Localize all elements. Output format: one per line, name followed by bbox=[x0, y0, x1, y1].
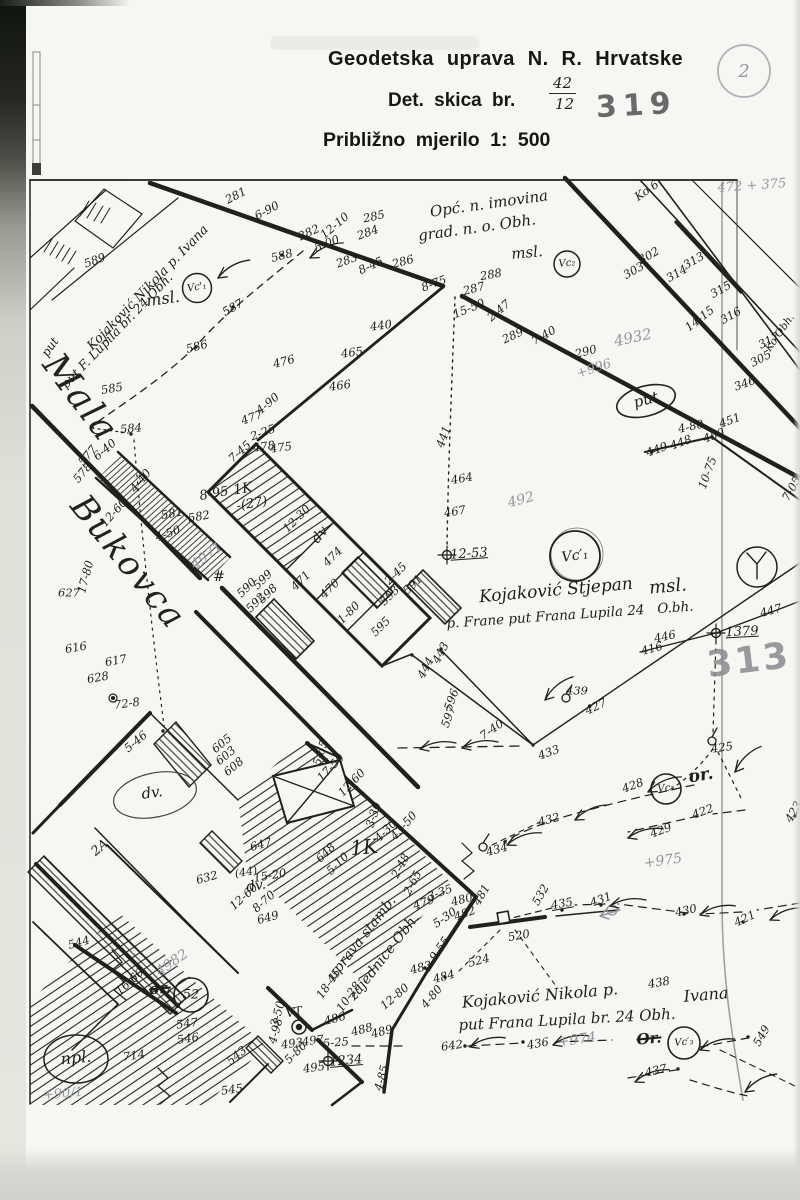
scanner-edge-left bbox=[0, 0, 26, 1200]
map-label: 546 bbox=[176, 1032, 199, 1046]
map-label: 1K bbox=[349, 836, 378, 858]
map-label: msl. bbox=[511, 244, 544, 262]
map-label: 545 bbox=[220, 1083, 243, 1097]
map-label: dv. bbox=[141, 784, 164, 802]
scanner-edge-top bbox=[0, 0, 130, 6]
scanned-cadastral-sketch: { "page": {"circled_number":"2","paper_c… bbox=[0, 0, 800, 1200]
map-label: 1379 bbox=[725, 625, 759, 640]
map-label: 466 bbox=[328, 379, 351, 393]
map-label: 2 bbox=[738, 63, 749, 81]
map-label: 714 bbox=[122, 1049, 145, 1063]
map-label: 1234 bbox=[329, 1053, 363, 1069]
map-label: Ivana bbox=[683, 985, 729, 1005]
map-label: 440 bbox=[369, 319, 392, 333]
map-label: 52 bbox=[183, 989, 200, 1002]
map-label: 495 bbox=[302, 1061, 325, 1075]
map-label: # bbox=[213, 570, 225, 584]
map-label: Vc′₁ bbox=[561, 547, 589, 565]
map-label: VT bbox=[285, 1005, 304, 1020]
map-label: +90/1 bbox=[42, 1086, 83, 1102]
map-label: 425 bbox=[710, 741, 733, 755]
map-label: npl. bbox=[60, 1049, 92, 1068]
map-label: Vc₃ bbox=[657, 783, 675, 794]
map-label: Vc′₃ bbox=[674, 1037, 694, 1049]
map-label: Vc₂ bbox=[558, 258, 576, 269]
map-label: 12-53 bbox=[450, 546, 488, 562]
vt-point bbox=[292, 1020, 306, 1034]
map-label: 5-25 bbox=[323, 1036, 350, 1050]
scanner-edge-right bbox=[793, 0, 800, 1200]
map-label: or. bbox=[149, 981, 172, 998]
map-label: or. bbox=[687, 765, 714, 786]
map-label: 642 bbox=[440, 1039, 463, 1053]
map-label: 465 bbox=[340, 346, 363, 360]
map-label: 439 bbox=[566, 685, 588, 697]
square-point bbox=[497, 911, 510, 924]
tree-symbol bbox=[737, 547, 777, 587]
map-label: msl. bbox=[648, 576, 687, 597]
map-label: 313 bbox=[705, 638, 793, 684]
map-sheet: 2472 + 3752816-9028212-105-002838-452852… bbox=[0, 0, 800, 1200]
map-label: 475 bbox=[269, 441, 292, 455]
scanner-edge-bottom bbox=[0, 1148, 800, 1200]
map-label: Or. bbox=[636, 1030, 662, 1047]
fence-zigzag bbox=[462, 843, 474, 879]
map-label: 1K bbox=[232, 480, 254, 497]
